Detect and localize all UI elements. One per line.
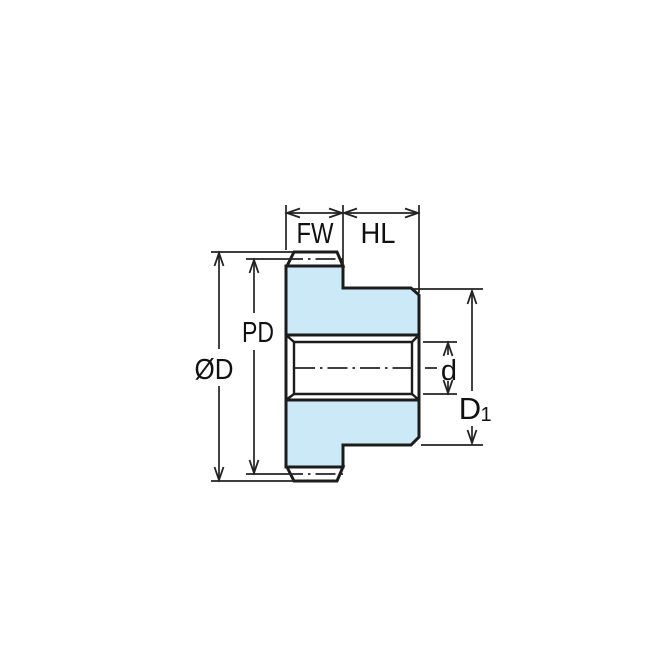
dimension-hub-length: HL xyxy=(344,205,419,293)
label-outer-diameter: ØD xyxy=(195,354,234,386)
label-face-width: FW xyxy=(297,218,335,250)
label-hub-diameter-main: D xyxy=(459,391,481,426)
drawing-canvas: FW HL ØD PD d xyxy=(0,0,670,670)
label-pitch-diameter: PD xyxy=(242,317,274,349)
dimension-outer-diameter: ØD xyxy=(195,252,296,481)
label-bore-diameter: d xyxy=(441,355,457,387)
label-hub-diameter-subscript: 1 xyxy=(480,404,491,426)
label-hub-length: HL xyxy=(361,218,396,250)
gear-body-lower xyxy=(286,400,419,467)
gear-cross-section xyxy=(283,252,437,481)
gear-dimension-diagram: FW HL ØD PD d xyxy=(0,0,670,670)
gear-body-upper xyxy=(286,266,419,335)
dimension-pitch-diameter: PD xyxy=(242,259,283,474)
